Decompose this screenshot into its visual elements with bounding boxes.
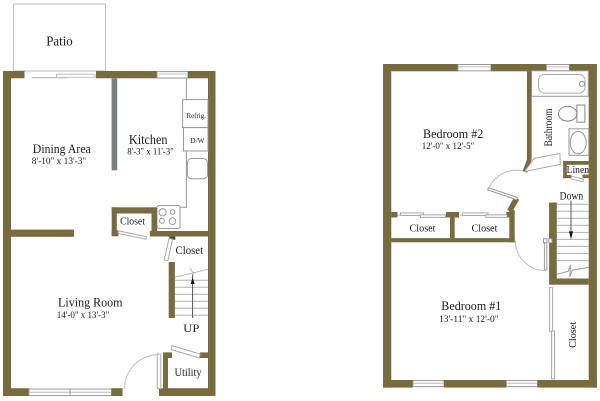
svg-text:Bathroom: Bathroom <box>543 108 555 146</box>
svg-text:UP: UP <box>183 323 199 335</box>
svg-text:Utility: Utility <box>175 365 202 379</box>
svg-text:14'-0" x 13'-3": 14'-0" x 13'-3" <box>57 311 110 321</box>
svg-text:Living Room: Living Room <box>58 295 123 310</box>
svg-text:8'-10" x 13'-3": 8'-10" x 13'-3" <box>32 157 87 167</box>
svg-text:Closet: Closet <box>567 322 579 348</box>
svg-text:D/W: D/W <box>190 137 204 145</box>
svg-text:Kitchen: Kitchen <box>129 132 168 147</box>
svg-text:Closet: Closet <box>410 222 436 234</box>
svg-text:12'-0" x 12'-5": 12'-0" x 12'-5" <box>422 142 475 152</box>
svg-text:13'-11" x 12'-0": 13'-11" x 12'-0" <box>439 315 499 325</box>
svg-text:Linen: Linen <box>567 165 590 176</box>
svg-text:Dining Area: Dining Area <box>33 141 91 156</box>
svg-text:Closet: Closet <box>176 245 204 257</box>
svg-text:Down: Down <box>560 190 584 202</box>
svg-text:8'-3" x 11'-3": 8'-3" x 11'-3" <box>127 147 174 157</box>
svg-text:Patio: Patio <box>46 33 73 48</box>
svg-text:Bedroom #2: Bedroom #2 <box>423 126 483 141</box>
svg-text:Closet: Closet <box>120 217 145 228</box>
svg-text:Refrig.: Refrig. <box>186 111 206 120</box>
svg-text:Closet: Closet <box>472 222 498 234</box>
svg-text:Bedroom #1: Bedroom #1 <box>441 298 501 313</box>
